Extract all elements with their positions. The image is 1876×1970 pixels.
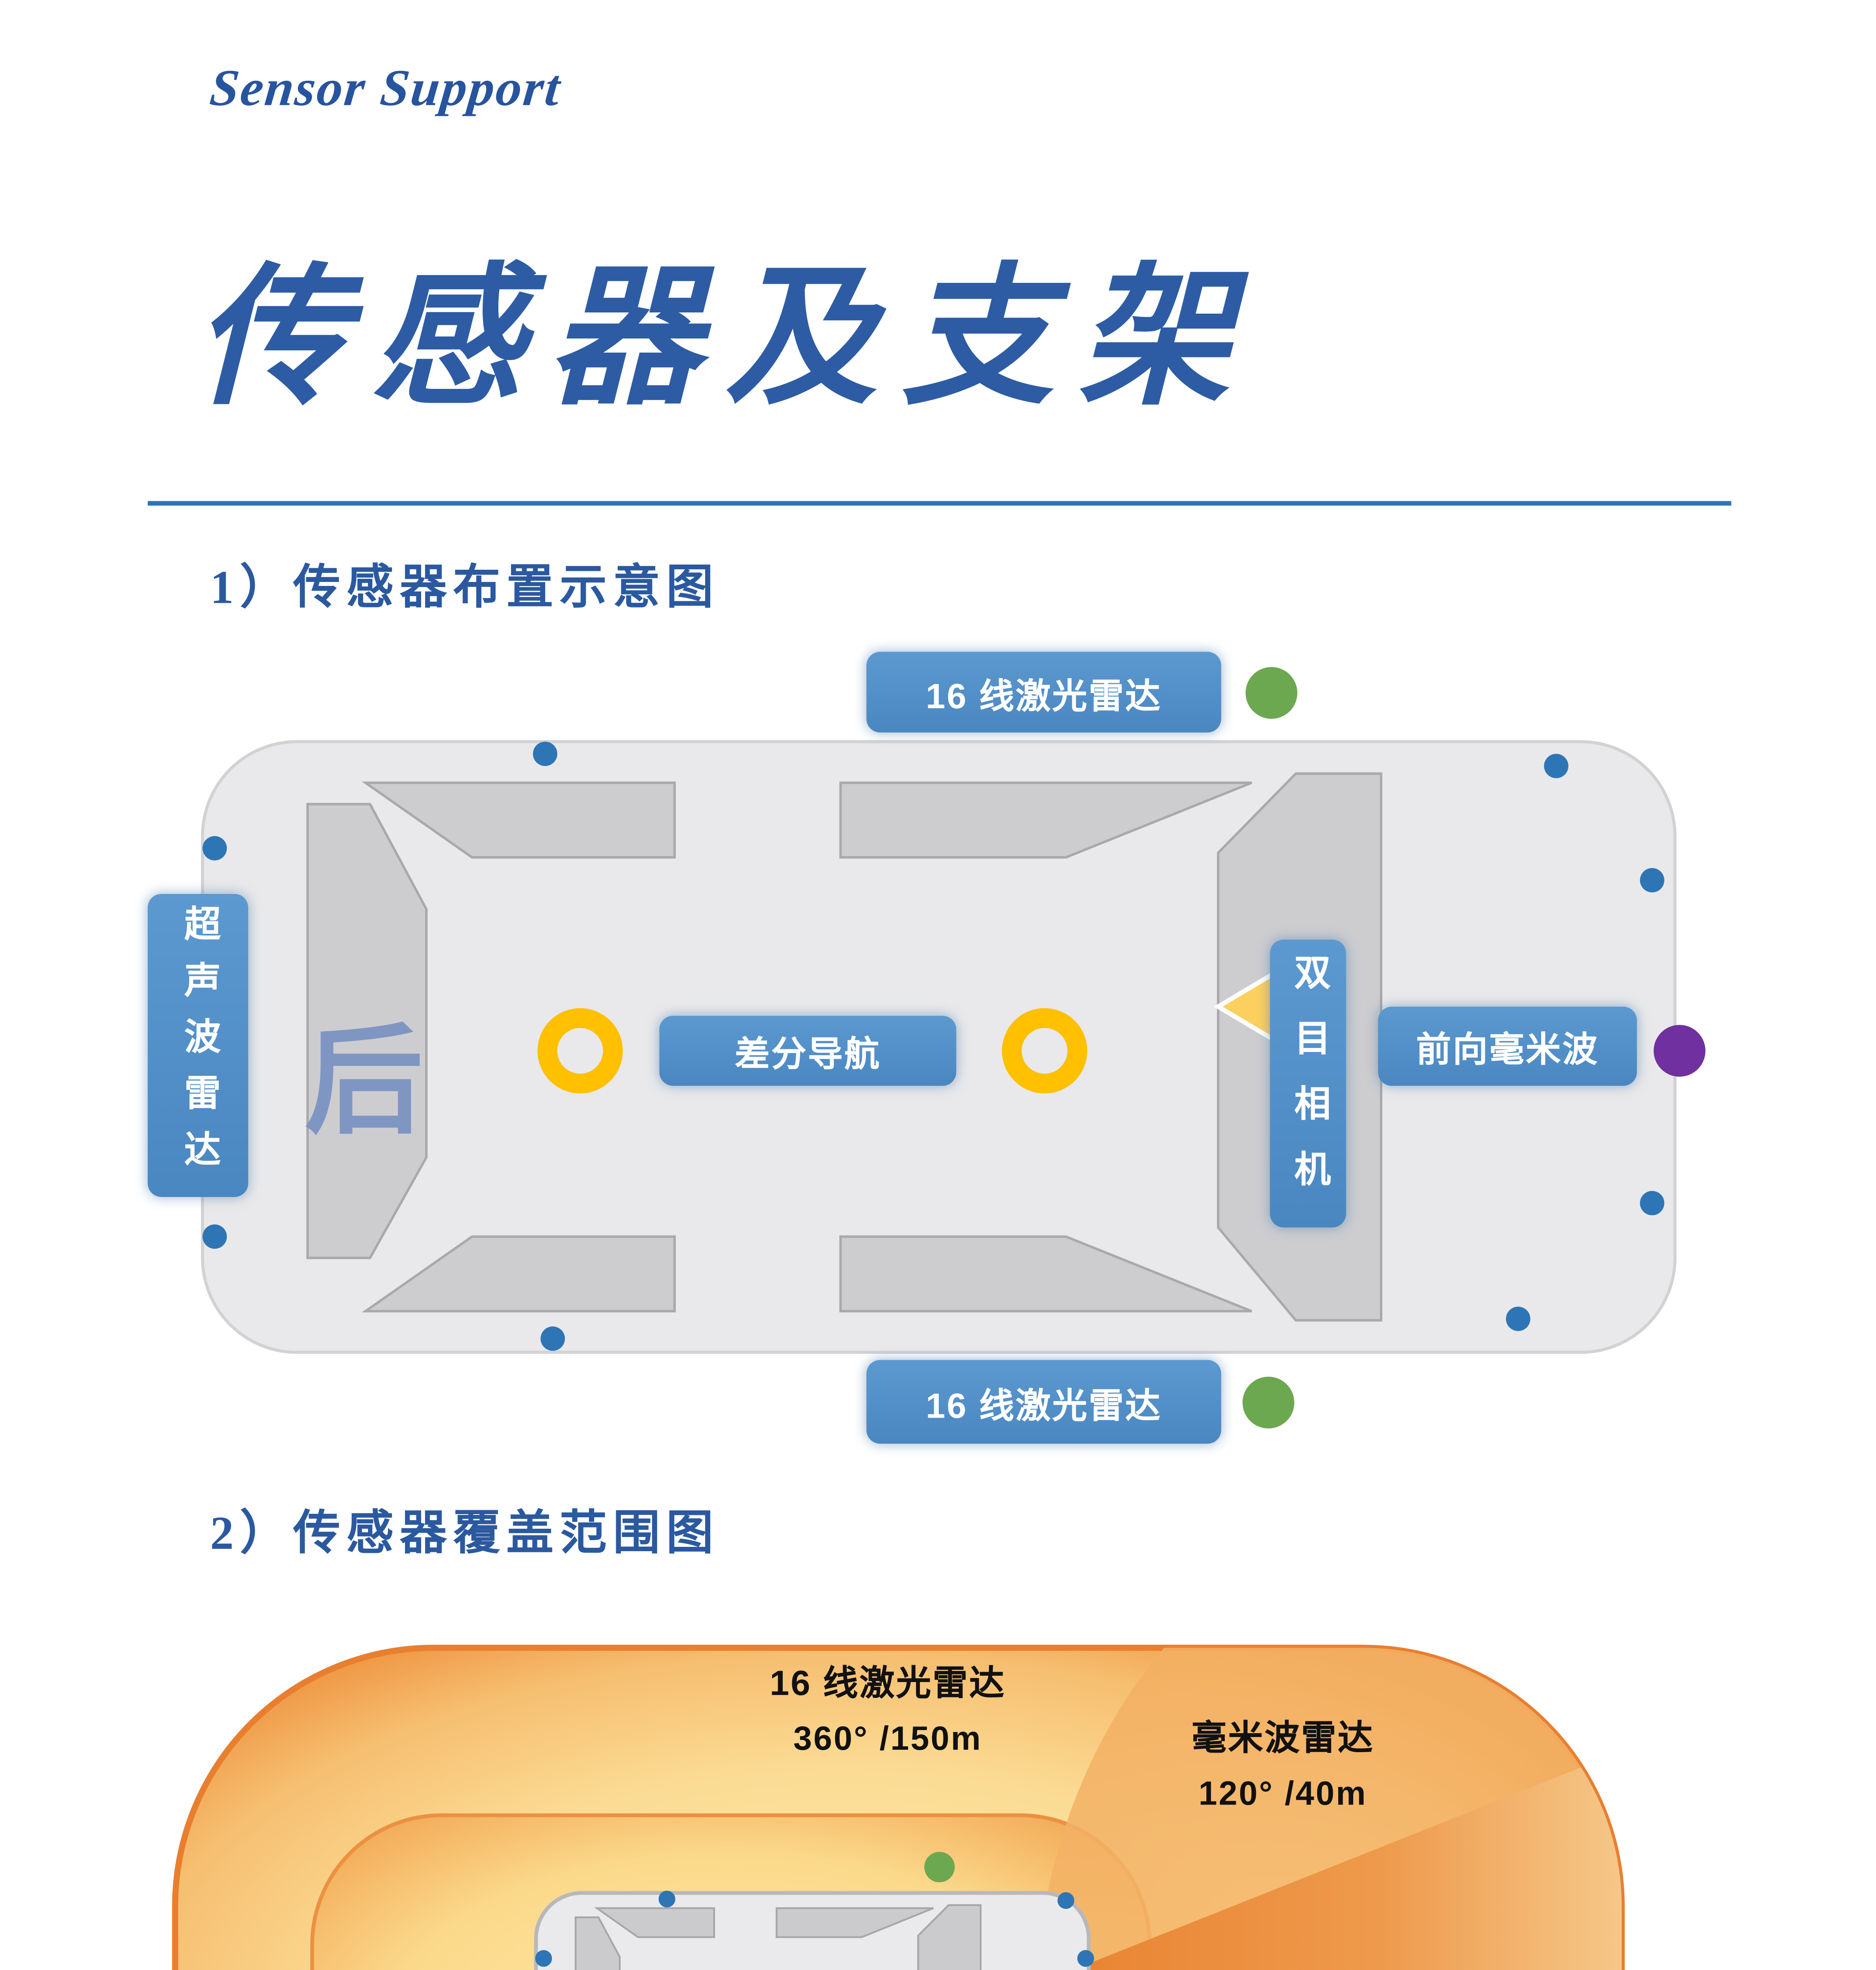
divider-rule	[148, 501, 1731, 506]
label-ultrasonic-left: 超声波雷达	[148, 894, 248, 1197]
coverage-stereo-name: 双目摄像头	[1221, 1968, 1594, 1970]
mmwave-marker	[1654, 1025, 1705, 1076]
label-stereo-camera: 双目相机	[1270, 940, 1346, 1228]
label-front-mmwave: 前向毫米波	[1378, 1007, 1637, 1086]
coverage-lidar-top-spec: 360° /150m	[674, 1719, 1101, 1759]
label-lidar-top: 16 线激光雷达	[866, 652, 1221, 732]
rear-marker-label: 后	[305, 987, 423, 1158]
coverage-ultrasonic-name: 超声波	[254, 1961, 620, 1970]
lidar-marker-bottom	[1243, 1377, 1294, 1428]
mini-lidar-marker-top	[924, 1852, 955, 1882]
label-gnss: 差分导航	[659, 1016, 957, 1086]
coverage-label-ultrasonic: 超声波 60° /4.5m	[254, 1961, 620, 1970]
label-lidar-bottom: 16 线激光雷达	[866, 1360, 1221, 1444]
lidar-marker-top	[1246, 667, 1297, 719]
brand-script: Sensor Support	[207, 61, 564, 119]
coverage-mmwave-top-spec: 120° /40m	[1096, 1774, 1469, 1814]
coverage-label-lidar-top: 16 线激光雷达 360° /150m	[674, 1654, 1101, 1759]
coverage-mmwave-top-name: 毫米波雷达	[1096, 1709, 1469, 1760]
page-title: 传感器及支架	[195, 213, 1255, 434]
coverage-lidar-top-name: 16 线激光雷达	[674, 1654, 1101, 1706]
section-heading-layout: 1）传感器布置示意图	[210, 548, 719, 617]
section-heading-coverage: 2）传感器覆盖范围图	[210, 1494, 719, 1563]
page: 后 Sensor Suppo	[0, 0, 1876, 1970]
coverage-label-stereo-camera: 双目摄像头 82° /40m	[1221, 1968, 1594, 1970]
coverage-label-mmwave-top: 毫米波雷达 120° /40m	[1096, 1709, 1469, 1814]
